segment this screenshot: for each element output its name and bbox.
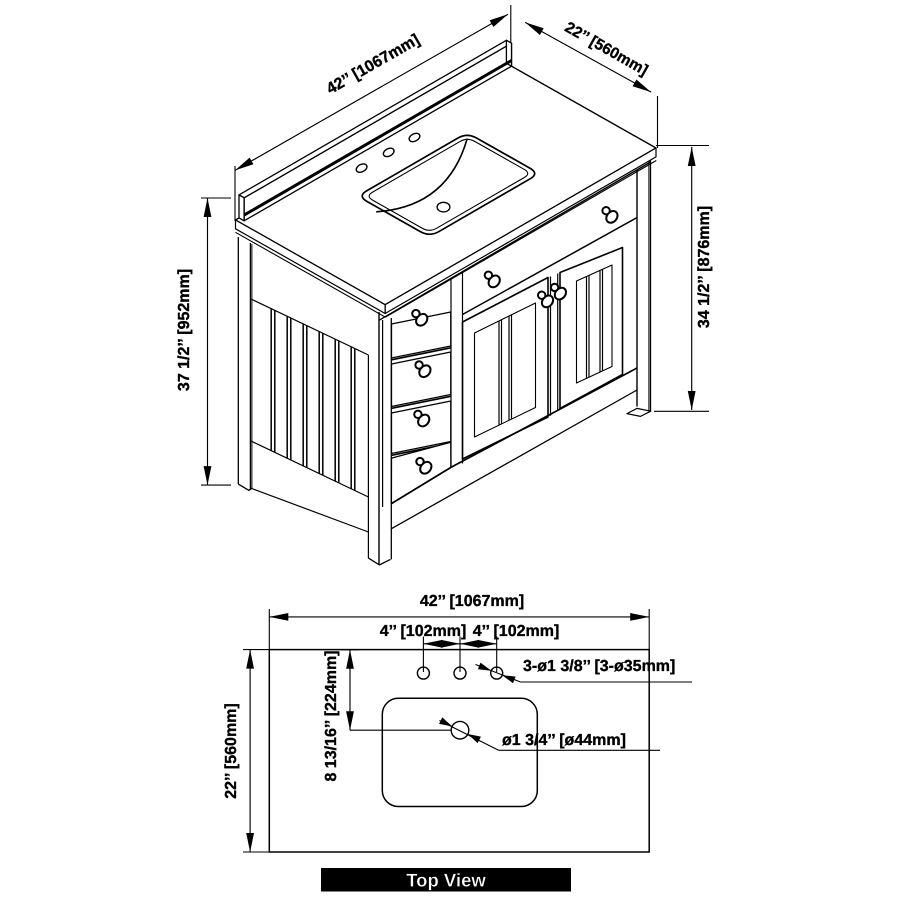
svg-text:ø1 3/4’’ [ø44mm]: ø1 3/4’’ [ø44mm] [502,732,626,749]
svg-text:4’’ [102mm]: 4’’ [102mm] [473,623,560,640]
svg-text:8 13/16’’ [224mm]: 8 13/16’’ [224mm] [323,650,340,781]
svg-text:37 1/2’’ [952mm]: 37 1/2’’ [952mm] [176,269,193,391]
svg-text:Top View: Top View [406,870,486,891]
svg-text:34 1/2’’ [876mm]: 34 1/2’’ [876mm] [696,206,713,328]
svg-text:42’’ [1067mm]: 42’’ [1067mm] [420,593,524,610]
svg-text:22’’ [560mm]: 22’’ [560mm] [223,703,240,798]
svg-text:3-ø1 3/8’’ [3-ø35mm]: 3-ø1 3/8’’ [3-ø35mm] [523,658,675,675]
svg-text:4’’ [102mm]: 4’’ [102mm] [380,623,467,640]
